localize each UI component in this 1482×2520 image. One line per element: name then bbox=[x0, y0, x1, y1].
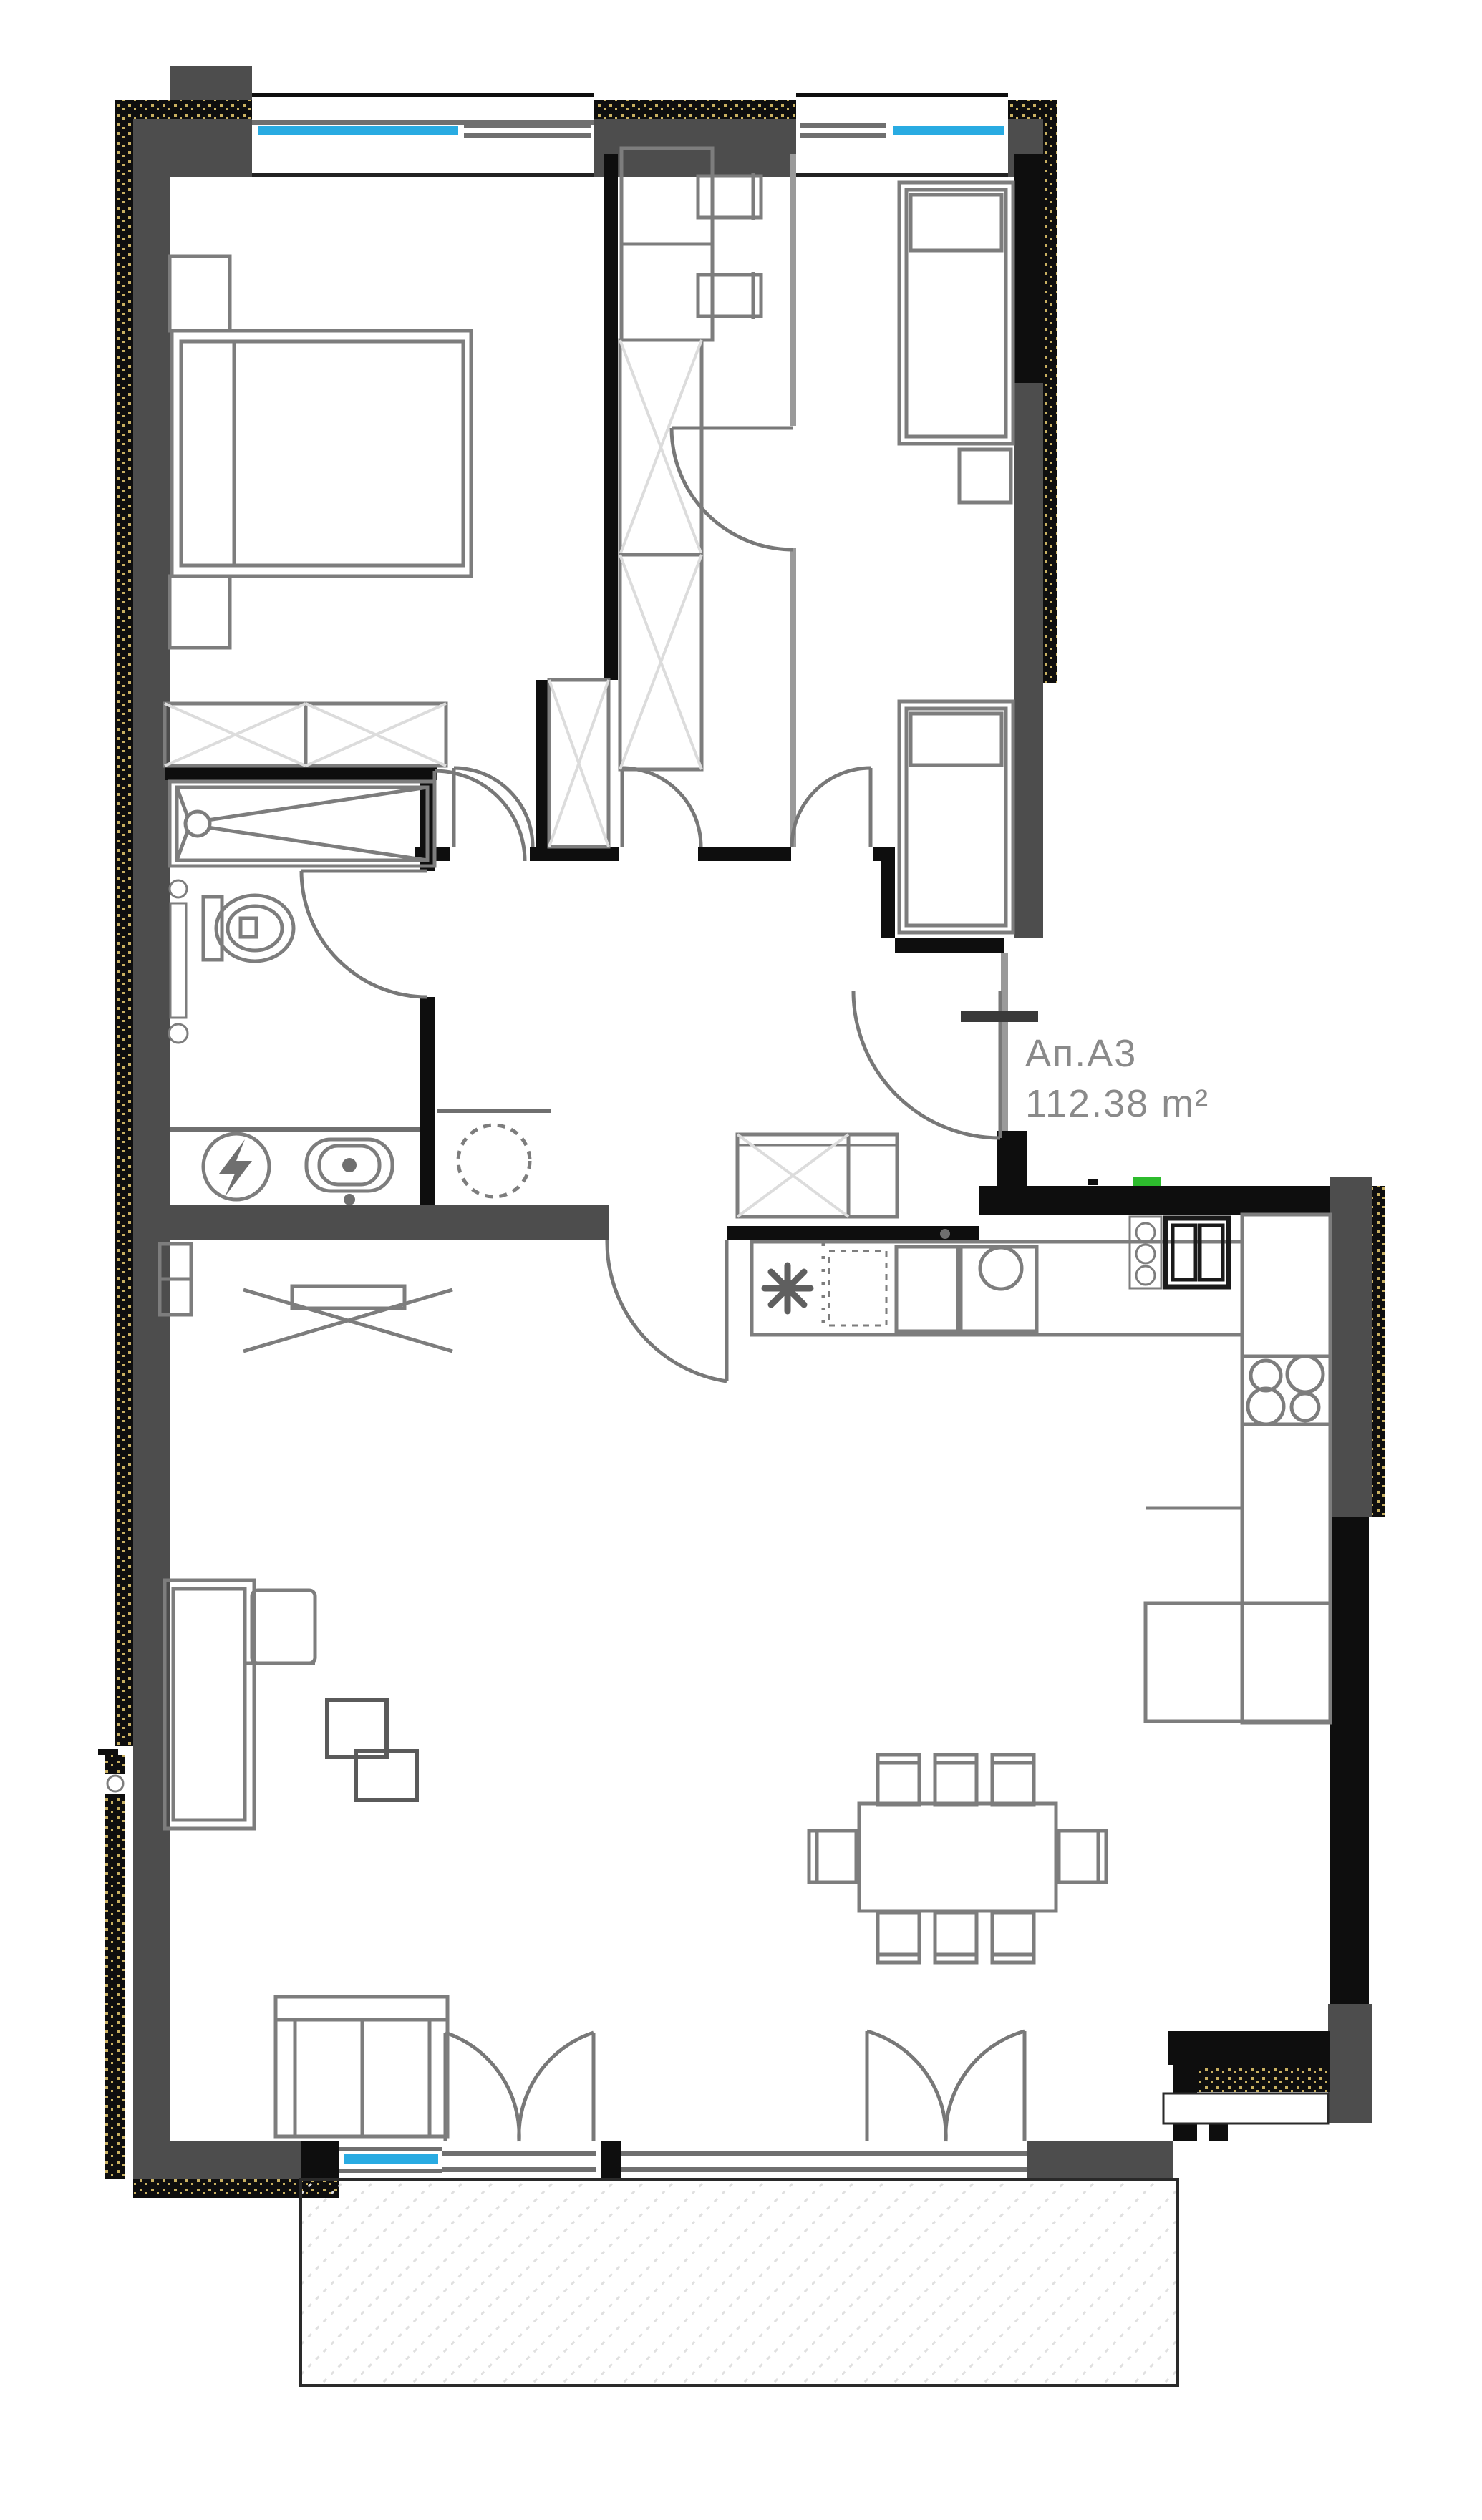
floor-plan: Ап.А3 112.38 m² bbox=[0, 0, 1482, 2520]
closet bbox=[549, 680, 609, 847]
kitchen-sink bbox=[980, 1247, 1022, 1289]
bedroom3-south-wall bbox=[895, 938, 1004, 953]
window3-glass bbox=[344, 2154, 438, 2164]
insulation-step-tick bbox=[98, 1749, 118, 1755]
bedroom1-office-wall bbox=[604, 154, 618, 680]
pillow bbox=[911, 195, 1002, 250]
dining-chair bbox=[935, 1912, 977, 1962]
hall-top-wall-3 bbox=[698, 847, 791, 861]
snowflake-icon bbox=[765, 1265, 810, 1311]
double-bed-pillows bbox=[181, 341, 234, 565]
window2-glass bbox=[893, 126, 1004, 135]
kitchen bbox=[752, 1215, 1330, 1723]
bottom-pillar-2 bbox=[601, 2141, 621, 2179]
french-doorA-sill-a bbox=[442, 2151, 596, 2156]
bottom-pillar-1 bbox=[301, 2141, 339, 2179]
wall-tick bbox=[1088, 1179, 1098, 1185]
bathroom-door-arc bbox=[301, 871, 427, 997]
dining-chair bbox=[878, 1912, 919, 1962]
dining-table bbox=[859, 1804, 1056, 1911]
shower-drain-icon bbox=[185, 812, 210, 836]
french-doorB-arcs bbox=[867, 2031, 1025, 2141]
dining-chair bbox=[1059, 1831, 1106, 1882]
bathroom-top-wall bbox=[165, 766, 437, 780]
entry-step-wall bbox=[881, 847, 895, 938]
dressing-door-arc bbox=[672, 428, 793, 550]
boiler bbox=[203, 1134, 269, 1200]
french-doorB-sill-b bbox=[864, 2167, 1027, 2172]
sink bbox=[306, 1139, 392, 1205]
hall-top-wall-2 bbox=[530, 847, 619, 861]
toilet bbox=[203, 895, 294, 961]
corner-sofa bbox=[165, 1580, 315, 1829]
dining-chair bbox=[878, 1755, 919, 1805]
fridge bbox=[1166, 1218, 1229, 1287]
living-room bbox=[160, 1244, 452, 2136]
window1-mullion-a bbox=[464, 123, 591, 128]
single-bed-upper bbox=[899, 183, 1013, 444]
single-bed-lower bbox=[899, 701, 1013, 933]
dining-chair bbox=[992, 1912, 1034, 1962]
desk-chair bbox=[698, 272, 761, 319]
towel-rail bbox=[169, 880, 188, 1043]
nightstand bbox=[959, 449, 1011, 502]
exterior-walls bbox=[98, 66, 1385, 2198]
nightstand bbox=[170, 576, 230, 648]
fixed-glazing-b bbox=[621, 2167, 864, 2172]
top-insulation-1 bbox=[133, 100, 252, 119]
unit-label: Ап.А3 bbox=[1025, 1032, 1137, 1075]
dining-chair bbox=[935, 1755, 977, 1805]
faucet bbox=[940, 1229, 950, 1239]
window2-sill bbox=[796, 173, 1008, 177]
kitchen-corner-block bbox=[1330, 1177, 1372, 1215]
top-insulation-2 bbox=[594, 100, 796, 119]
washing-machine bbox=[458, 1125, 530, 1197]
bottomright-insulation bbox=[1197, 2065, 1330, 2092]
window1-sill bbox=[252, 173, 594, 177]
two-seat-sofa bbox=[276, 1997, 447, 2136]
double-bed-mattress bbox=[234, 341, 463, 565]
terrace-slab bbox=[301, 2179, 1178, 2385]
kitchen-top-wall bbox=[979, 1186, 1330, 1215]
french-doorA-arcs bbox=[445, 2033, 594, 2141]
dining-set bbox=[809, 1755, 1106, 1962]
dining-chair bbox=[992, 1755, 1034, 1805]
bathroom-right-wall-b bbox=[420, 997, 435, 1205]
cooktop bbox=[1242, 1356, 1330, 1424]
nightstand bbox=[170, 256, 230, 331]
fridge-spot bbox=[765, 1265, 810, 1311]
green-marker bbox=[1133, 1177, 1161, 1186]
left-insulation-upper bbox=[115, 100, 133, 1746]
window1-mullion-b bbox=[464, 133, 591, 138]
window2-outer-line bbox=[796, 93, 1008, 97]
bottom-wall-right bbox=[1027, 2141, 1173, 2179]
bedroom-1 bbox=[165, 256, 471, 766]
window1-outer-line bbox=[252, 93, 594, 97]
bottomright-wall bbox=[1168, 2031, 1330, 2065]
bedroom3-right-wall-lower bbox=[1014, 383, 1043, 938]
terrace-edge-strip bbox=[1163, 2093, 1328, 2123]
bottom-wall-left bbox=[170, 2141, 301, 2179]
fixed-glazing-a bbox=[621, 2151, 864, 2156]
peninsula-bar bbox=[1146, 1603, 1330, 1721]
desk-chair bbox=[698, 173, 761, 220]
pillow bbox=[911, 714, 1002, 765]
entry-door-panel bbox=[961, 1011, 1038, 1022]
oven-tower bbox=[1130, 1217, 1161, 1288]
right-wall-gray bbox=[1330, 1215, 1372, 1517]
office-door-arc bbox=[622, 768, 701, 847]
office-bedroom3-partition-a bbox=[790, 154, 796, 426]
dining-chair bbox=[809, 1831, 856, 1882]
coffee-table bbox=[327, 1700, 387, 1757]
window1-glass bbox=[258, 126, 458, 135]
right-insulation-top bbox=[1043, 100, 1057, 683]
lightning-icon bbox=[219, 1139, 252, 1197]
bedroom1-office-jog bbox=[536, 680, 549, 847]
dresser bbox=[165, 704, 446, 766]
laundry-counter bbox=[437, 1109, 551, 1113]
bathroom-south-wall bbox=[133, 1205, 609, 1240]
bedroom3-right-wall-upper bbox=[1014, 154, 1043, 383]
floor-plan-drawing: Ап.А3 112.38 m² bbox=[0, 0, 1482, 2520]
wardrobe bbox=[620, 340, 702, 769]
right-insulation-kitchen bbox=[1372, 1186, 1385, 1517]
left-insulation-lower bbox=[105, 1755, 125, 2179]
bedroom3-door-arc bbox=[792, 768, 871, 847]
sink-cabinet-left bbox=[896, 1247, 958, 1331]
window2-mullion-b bbox=[800, 133, 886, 138]
right-block-low bbox=[1328, 2004, 1372, 2123]
double-bed-frame bbox=[172, 331, 471, 576]
office-bedroom3-partition-b bbox=[790, 548, 796, 847]
dishwasher bbox=[829, 1251, 886, 1325]
living-door-arc bbox=[607, 1240, 727, 1381]
hall-closet bbox=[737, 1134, 897, 1217]
laundry-niche bbox=[437, 1109, 551, 1197]
counter-right-run bbox=[1242, 1215, 1330, 1723]
left-wall bbox=[133, 100, 170, 2179]
tv-console bbox=[243, 1286, 452, 1351]
entry-jamb-block bbox=[997, 1131, 1027, 1186]
window2-mullion-a bbox=[800, 123, 886, 128]
parapet-stub bbox=[170, 66, 252, 100]
vanity-counter bbox=[170, 1127, 420, 1132]
unit-label-group: Ап.А3 112.38 m² bbox=[1025, 1032, 1209, 1125]
bedroom-3 bbox=[899, 183, 1013, 933]
french-doorB-sill-a bbox=[864, 2151, 1027, 2156]
window3-frame-a bbox=[339, 2147, 442, 2151]
french-doorA-sill-b bbox=[442, 2167, 596, 2172]
window3-frame-b bbox=[339, 2169, 442, 2173]
shower bbox=[170, 782, 435, 866]
right-wall-black bbox=[1330, 1517, 1369, 2004]
office-dressing bbox=[549, 148, 761, 847]
area-label: 112.38 m² bbox=[1025, 1082, 1209, 1125]
